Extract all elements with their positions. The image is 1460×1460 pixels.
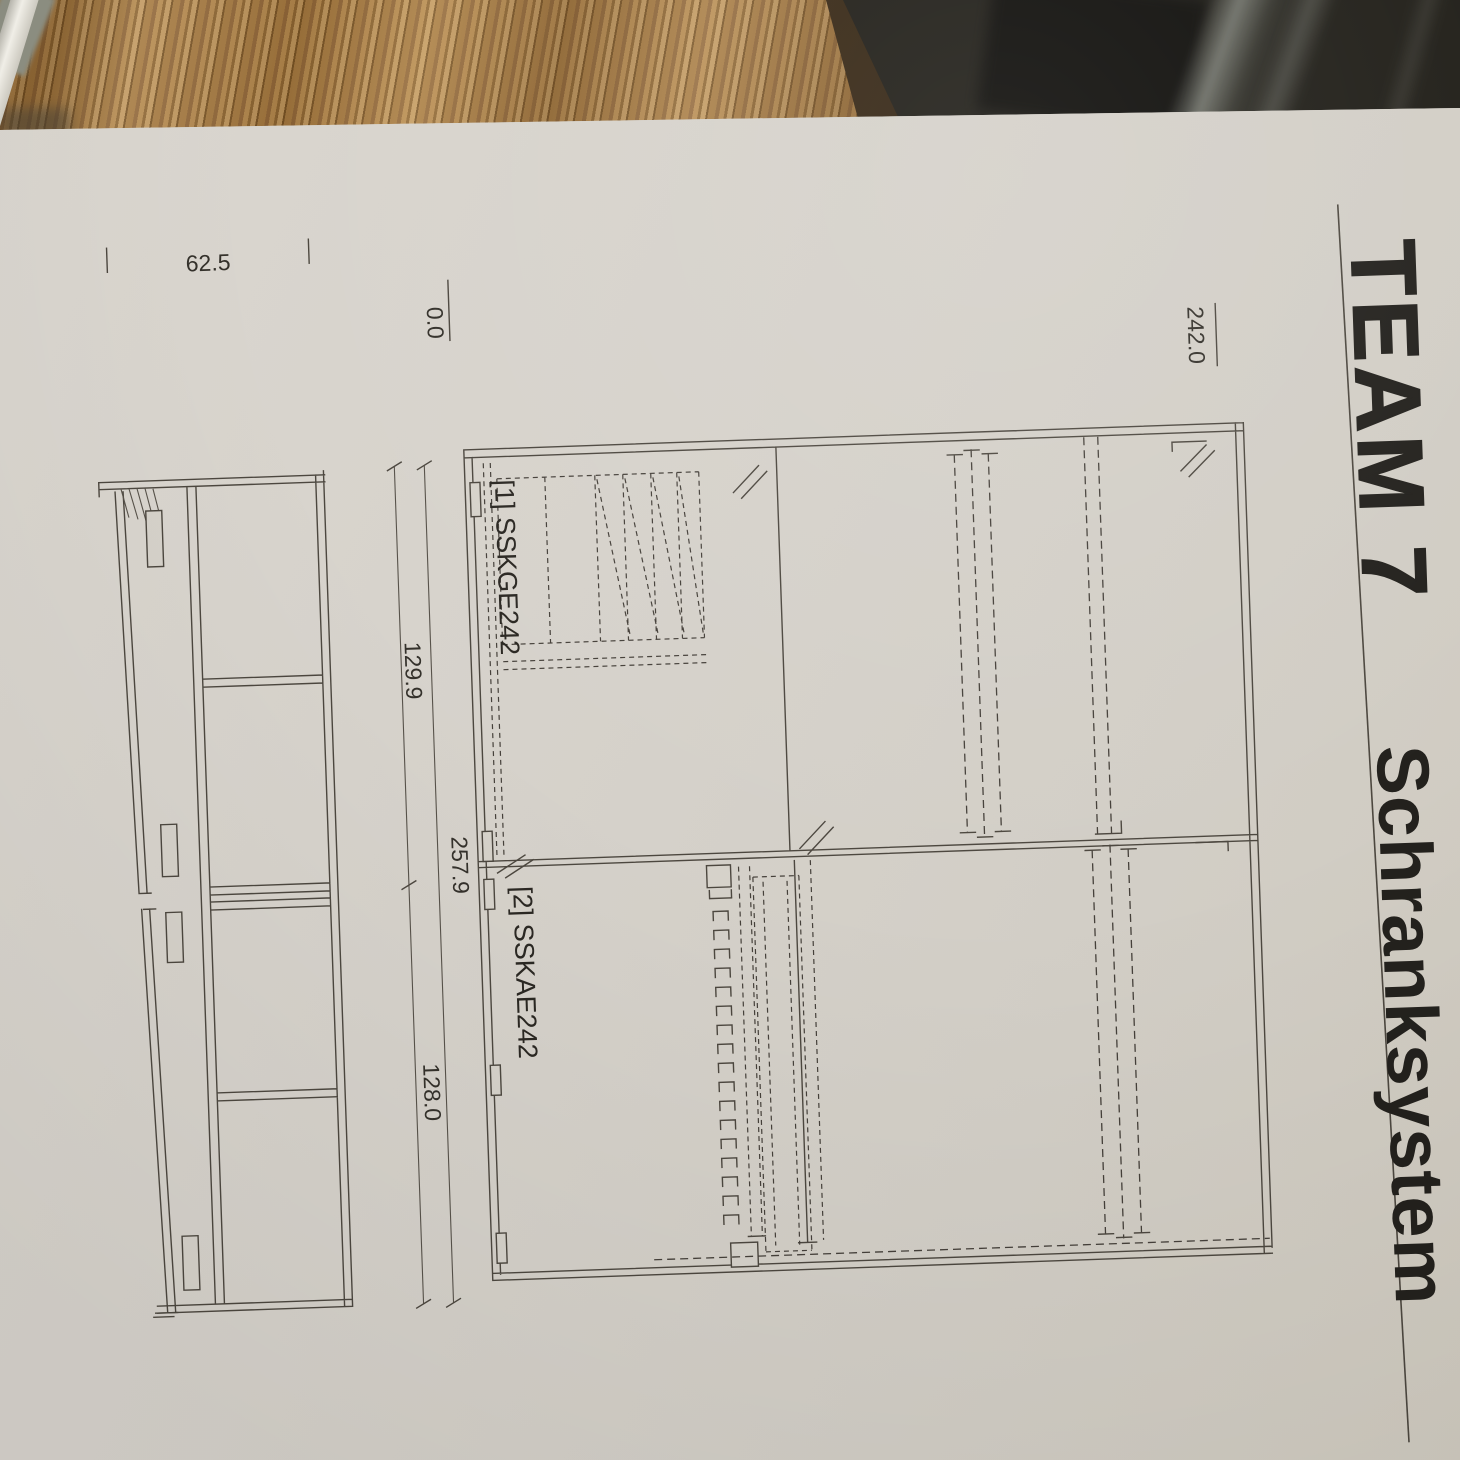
lower-unit-height: 128.0 <box>418 1063 446 1121</box>
top-level-line <box>1215 304 1217 366</box>
unit-2-label: [2] SSKAE242 <box>507 886 543 1060</box>
hinge-plate <box>482 831 493 861</box>
hinge-block <box>182 1236 200 1291</box>
photo-scene: [1] SSKGE242 [2] SSKAE242 62.5 0.0 242.0… <box>0 0 1460 1460</box>
hinge-block <box>146 511 164 568</box>
unit-1-label: [1] SSKGE242 <box>489 479 525 656</box>
total-height: 257.9 <box>446 836 474 894</box>
hinge-block <box>166 912 184 963</box>
top-level: 242.0 <box>1182 306 1210 364</box>
unit-1-interior <box>483 436 1122 857</box>
side-view <box>99 471 354 1318</box>
hinge-block <box>161 824 179 877</box>
technical-drawing: [1] SSKGE242 [2] SSKAE242 62.5 0.0 242.0… <box>0 0 1460 1460</box>
hinge-plate <box>470 482 481 516</box>
hinge-plate <box>484 879 495 909</box>
drawing-title: Schranksystem <box>1361 744 1460 1307</box>
fitting-block <box>706 865 731 888</box>
upper-unit-height: 129.9 <box>399 641 427 699</box>
depth-dimension: 62.5 <box>185 249 231 277</box>
plinth-foot <box>731 1242 759 1267</box>
shelf-pin-row <box>713 911 739 1224</box>
front-view: [1] SSKGE242 [2] SSKAE242 <box>464 423 1273 1281</box>
floor-level: 0.0 <box>422 306 449 339</box>
dimension-texts: 62.5 0.0 242.0 129.9 128.0 257.9 <box>106 208 1242 1132</box>
brand-logo: TEAM 7 <box>1331 238 1446 603</box>
hinge-plate <box>490 1065 501 1095</box>
side-view-door <box>115 491 178 1314</box>
hinge-plate <box>496 1233 507 1263</box>
unit-2-interior <box>640 840 1270 1270</box>
door-corner-marks <box>483 441 1228 878</box>
